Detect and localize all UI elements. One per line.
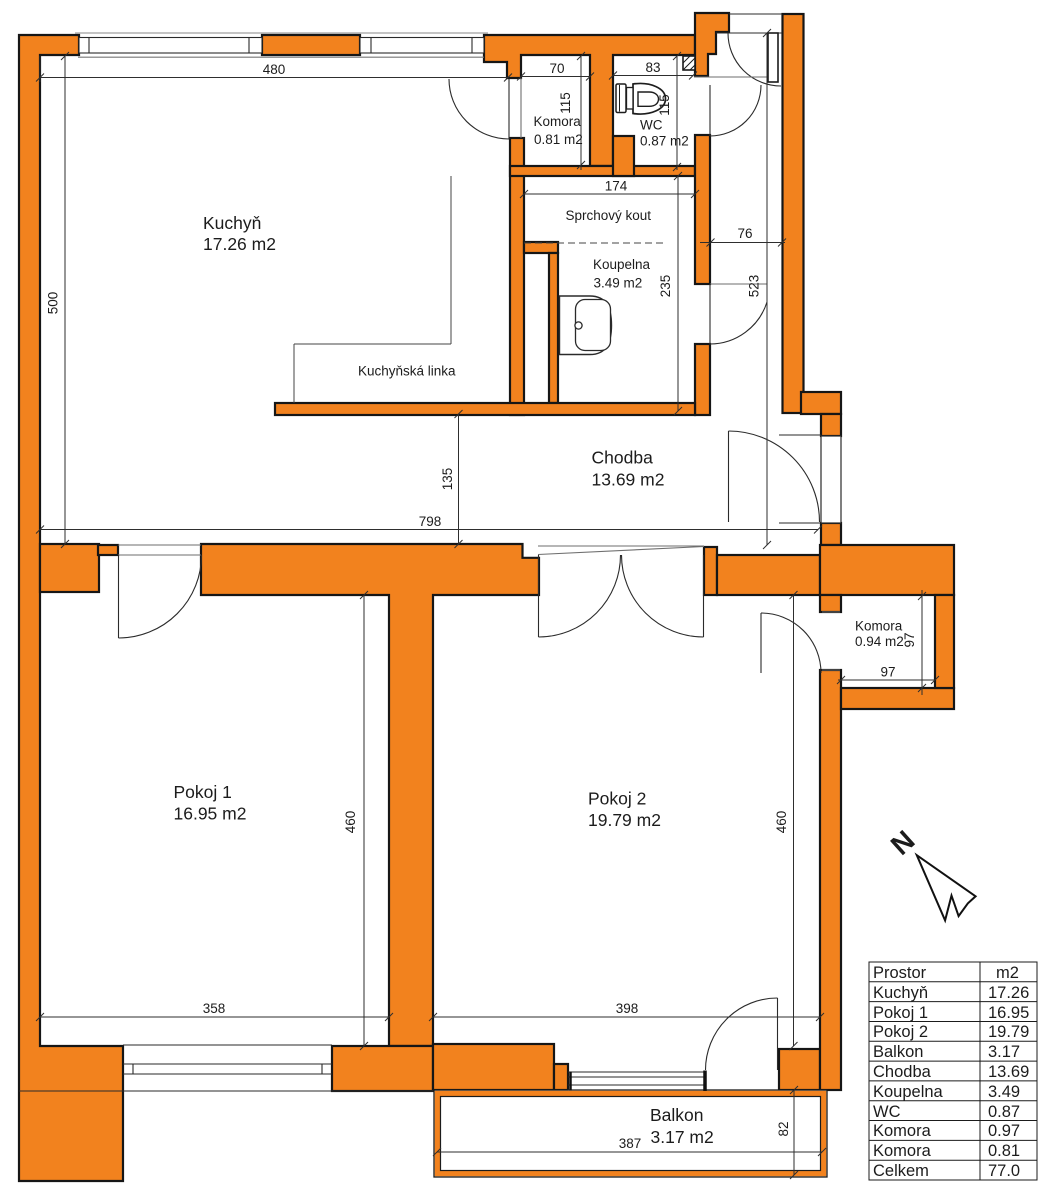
svg-text:Kuchyň: Kuchyň bbox=[203, 213, 261, 233]
svg-text:Komora: Komora bbox=[873, 1142, 932, 1160]
svg-text:13.69 m2: 13.69 m2 bbox=[592, 470, 665, 490]
svg-text:3.17 m2: 3.17 m2 bbox=[651, 1127, 714, 1147]
svg-text:Komora: Komora bbox=[873, 1122, 932, 1140]
svg-text:WC: WC bbox=[873, 1103, 901, 1121]
svg-text:115: 115 bbox=[558, 92, 573, 114]
svg-text:70: 70 bbox=[549, 61, 564, 76]
svg-text:460: 460 bbox=[343, 811, 358, 834]
svg-text:WC: WC bbox=[640, 118, 663, 133]
svg-text:19.79: 19.79 bbox=[988, 1023, 1029, 1041]
svg-text:Kuchyňská linka: Kuchyňská linka bbox=[358, 364, 456, 379]
svg-text:798: 798 bbox=[419, 514, 442, 529]
svg-text:500: 500 bbox=[46, 292, 61, 315]
svg-text:17.26: 17.26 bbox=[988, 984, 1029, 1002]
svg-text:398: 398 bbox=[616, 1001, 639, 1016]
svg-text:Koupelna: Koupelna bbox=[593, 257, 651, 272]
svg-text:174: 174 bbox=[605, 179, 628, 194]
svg-text:3.17: 3.17 bbox=[988, 1043, 1020, 1061]
svg-text:Koupelna: Koupelna bbox=[873, 1083, 944, 1101]
svg-text:Pokoj 1: Pokoj 1 bbox=[174, 782, 232, 802]
svg-text:Sprchový kout: Sprchový kout bbox=[566, 208, 652, 223]
svg-text:Chodba: Chodba bbox=[873, 1063, 932, 1081]
svg-text:Kuchyň: Kuchyň bbox=[873, 984, 928, 1002]
svg-text:Prostor: Prostor bbox=[873, 964, 927, 982]
svg-text:0.81 m2: 0.81 m2 bbox=[534, 132, 583, 147]
svg-text:387: 387 bbox=[619, 1136, 642, 1151]
svg-text:Pokoj 2: Pokoj 2 bbox=[588, 789, 646, 809]
svg-text:97: 97 bbox=[902, 632, 917, 647]
svg-text:480: 480 bbox=[263, 62, 286, 77]
svg-text:Komora: Komora bbox=[855, 619, 903, 634]
svg-text:Chodba: Chodba bbox=[592, 448, 654, 468]
svg-text:76: 76 bbox=[737, 226, 752, 241]
svg-text:m2: m2 bbox=[996, 964, 1019, 982]
svg-text:77.0: 77.0 bbox=[988, 1162, 1020, 1180]
svg-text:97: 97 bbox=[880, 665, 895, 680]
svg-text:82: 82 bbox=[776, 1121, 791, 1136]
svg-text:358: 358 bbox=[203, 1001, 226, 1016]
svg-text:16.95: 16.95 bbox=[988, 1004, 1029, 1022]
svg-text:3.49: 3.49 bbox=[988, 1083, 1020, 1101]
svg-text:83: 83 bbox=[645, 60, 660, 75]
svg-text:135: 135 bbox=[440, 468, 455, 491]
svg-text:115: 115 bbox=[657, 94, 672, 116]
svg-text:0.87 m2: 0.87 m2 bbox=[640, 134, 689, 149]
svg-text:17.26 m2: 17.26 m2 bbox=[203, 234, 276, 254]
svg-text:13.69: 13.69 bbox=[988, 1063, 1029, 1081]
svg-text:0.94 m2: 0.94 m2 bbox=[855, 634, 904, 649]
svg-text:523: 523 bbox=[747, 275, 762, 298]
svg-text:Balkon: Balkon bbox=[873, 1043, 923, 1061]
svg-text:16.95 m2: 16.95 m2 bbox=[174, 804, 247, 824]
svg-text:0.87: 0.87 bbox=[988, 1103, 1020, 1121]
svg-text:19.79 m2: 19.79 m2 bbox=[588, 810, 661, 830]
svg-text:460: 460 bbox=[774, 811, 789, 834]
svg-text:0.97: 0.97 bbox=[988, 1122, 1020, 1140]
svg-text:Pokoj 2: Pokoj 2 bbox=[873, 1023, 928, 1041]
svg-text:Pokoj 1: Pokoj 1 bbox=[873, 1004, 928, 1022]
svg-text:0.81: 0.81 bbox=[988, 1142, 1020, 1160]
svg-text:Komora: Komora bbox=[534, 114, 582, 129]
svg-text:3.49 m2: 3.49 m2 bbox=[594, 276, 643, 291]
svg-text:Celkem: Celkem bbox=[873, 1162, 929, 1180]
svg-text:Balkon: Balkon bbox=[650, 1105, 704, 1125]
svg-text:235: 235 bbox=[658, 275, 673, 298]
